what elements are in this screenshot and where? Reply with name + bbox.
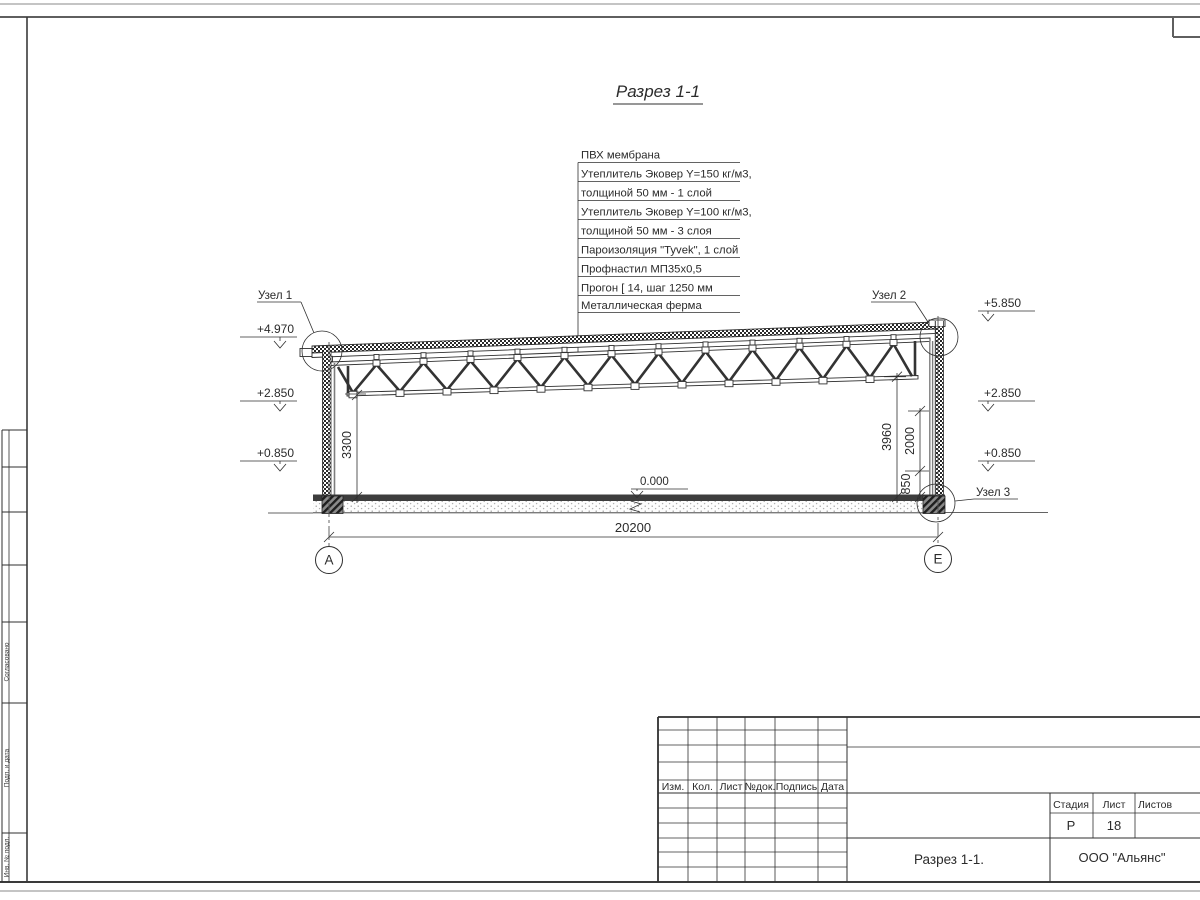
parapet-cap xyxy=(929,320,945,327)
drawing-sheet: Согласовано Подп. и дата Инв. № подл. Ра… xyxy=(0,0,1200,900)
stage-value: Р xyxy=(1067,818,1076,833)
rev-header-data: Дата xyxy=(821,781,844,793)
node-3-label: Узел 3 xyxy=(976,487,1010,499)
title-block: Изм. Кол. Лист №док. Подпись Дата Стадия… xyxy=(658,717,1200,882)
foundation-right xyxy=(923,496,945,514)
rev-header-kol: Кол. xyxy=(692,781,713,793)
level-left-top: +4.970 xyxy=(240,322,297,348)
callout-purlin: Прогон [ 14, шаг 1250 мм xyxy=(581,283,713,295)
callout-steel-truss: Металлическая ферма xyxy=(581,300,702,312)
dim-left-3300: 3300 xyxy=(340,390,366,503)
dim-3960-label: 3960 xyxy=(880,423,894,451)
dim-2000-label: 2000 xyxy=(903,427,917,455)
revision-table: Изм. Кол. Лист №док. Подпись Дата xyxy=(658,717,847,882)
rev-header-podpis: Подпись xyxy=(776,781,818,793)
view-title: Разрез 1-1 xyxy=(613,82,703,104)
corner-cell xyxy=(1173,17,1200,37)
dim-20200-label: 20200 xyxy=(615,520,651,535)
dim-span-20200: 20200 xyxy=(324,520,943,542)
callout-insulation-100: Утеплитель Эковер Y=100 кг/м3, xyxy=(581,207,752,219)
view-title-text: Разрез 1-1 xyxy=(616,82,700,101)
dimensions: 3300 3960 2000 850 20200 xyxy=(324,372,943,542)
level-right-low: +0.850 xyxy=(978,446,1035,471)
title-block-right: Стадия Лист Листов Р 18 Разрез 1-1. ООО … xyxy=(847,747,1200,882)
company-name: ООО "Альянс" xyxy=(1079,850,1166,865)
callout-vapour-barrier: Пароизоляция "Tyvek", 1 слой xyxy=(581,245,738,257)
level-right-mid: +2.850 xyxy=(978,386,1035,411)
sheets-label: Листов xyxy=(1138,799,1173,811)
margin-label-sign-date: Подп. и дата xyxy=(4,748,11,787)
level-right-mid-label: +2.850 xyxy=(984,386,1021,400)
level-left-low: +0.850 xyxy=(240,446,297,471)
margin-label-inv-no: Инв. № подл. xyxy=(4,837,11,878)
sheet-label: Лист xyxy=(1103,799,1126,811)
sheet-value: 18 xyxy=(1107,818,1121,833)
level-left-low-label: +0.850 xyxy=(257,446,294,460)
dim-3300-label: 3300 xyxy=(340,431,354,459)
rev-header-list: Лист xyxy=(720,781,743,793)
level-left-top-label: +4.970 xyxy=(257,322,294,336)
axis-e-label: Е xyxy=(933,552,942,567)
callout-insulation-150: Утеплитель Эковер Y=150 кг/м3, xyxy=(581,169,752,181)
level-right-top-label: +5.850 xyxy=(984,296,1021,310)
level-left-mid: +2.850 xyxy=(240,386,297,411)
node-1-label: Узел 1 xyxy=(258,290,292,302)
level-right-top: +5.850 xyxy=(978,296,1035,321)
right-wall xyxy=(929,320,945,498)
stage-label: Стадия xyxy=(1053,799,1089,811)
rev-header-izm: Изм. xyxy=(662,781,685,793)
floor-slab xyxy=(268,495,1048,514)
roof-callout-stack: ПВХ мембрана Утеплитель Эковер Y=150 кг/… xyxy=(578,150,752,353)
margin-label-agreed: Согласовано xyxy=(4,642,11,681)
foundation-left xyxy=(322,496,343,514)
callout-insulation-150-thk: толщиной 50 мм - 1 слой xyxy=(581,188,712,200)
callout-insulation-100-thk: толщиной 50 мм - 3 слоя xyxy=(581,226,712,238)
margin-table: Согласовано Подп. и дата Инв. № подл. xyxy=(2,430,27,882)
callout-profiled-sheet: Профнастил МП35х0,5 xyxy=(581,264,702,276)
drawing-name: Разрез 1-1. xyxy=(914,852,984,867)
level-left-mid-label: +2.850 xyxy=(257,386,294,400)
dim-850-label: 850 xyxy=(899,474,913,495)
level-right-low-label: +0.850 xyxy=(984,446,1021,460)
section-drawing: Согласовано Подп. и дата Инв. № подл. Ра… xyxy=(0,0,1200,900)
rev-header-dok: №док. xyxy=(745,781,776,793)
node-2-label: Узел 2 xyxy=(872,290,906,302)
level-zero-label: 0.000 xyxy=(640,476,669,488)
callout-pvc-membrane: ПВХ мембрана xyxy=(581,150,661,162)
axis-a-label: А xyxy=(324,553,333,568)
